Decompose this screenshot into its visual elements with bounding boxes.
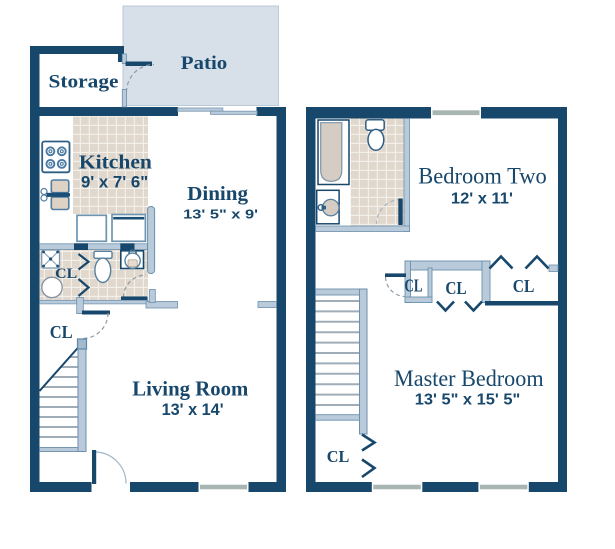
svg-text:CL: CL: [55, 266, 77, 282]
svg-text:12' x 11': 12' x 11': [451, 191, 513, 208]
svg-text:9' x 7' 6": 9' x 7' 6": [81, 172, 148, 191]
svg-text:Storage: Storage: [49, 73, 119, 93]
svg-text:13' 5" x 15' 5": 13' 5" x 15' 5": [415, 391, 521, 408]
svg-text:CL: CL: [405, 276, 423, 296]
svg-text:Bedroom Two: Bedroom Two: [418, 164, 547, 189]
svg-text:13' 5" x 9': 13' 5" x 9': [183, 207, 258, 222]
svg-text:CL: CL: [327, 447, 350, 466]
svg-text:CL: CL: [50, 322, 73, 342]
svg-text:Living Room: Living Room: [132, 377, 248, 401]
svg-text:CL: CL: [513, 276, 535, 296]
svg-text:Patio: Patio: [181, 53, 228, 74]
svg-text:Kitchen: Kitchen: [79, 151, 153, 173]
svg-text:Master Bedroom: Master Bedroom: [394, 366, 544, 391]
svg-text:13' x 14': 13' x 14': [162, 401, 224, 419]
svg-text:Dining: Dining: [187, 183, 248, 205]
svg-text:CL: CL: [445, 278, 466, 298]
